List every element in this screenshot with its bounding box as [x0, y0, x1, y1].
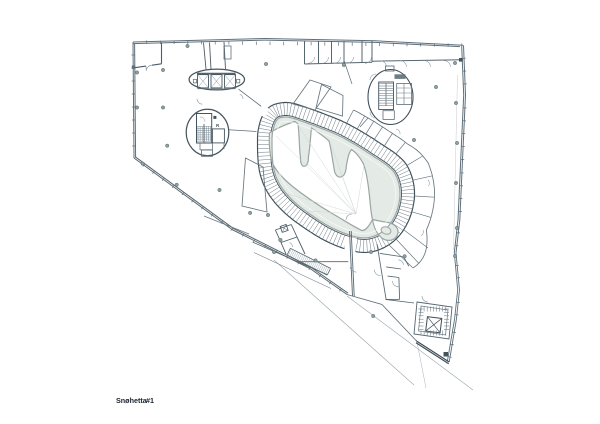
svg-text:#1: #1 — [146, 396, 154, 405]
svg-text:Snøhetta: Snøhetta — [116, 396, 148, 405]
